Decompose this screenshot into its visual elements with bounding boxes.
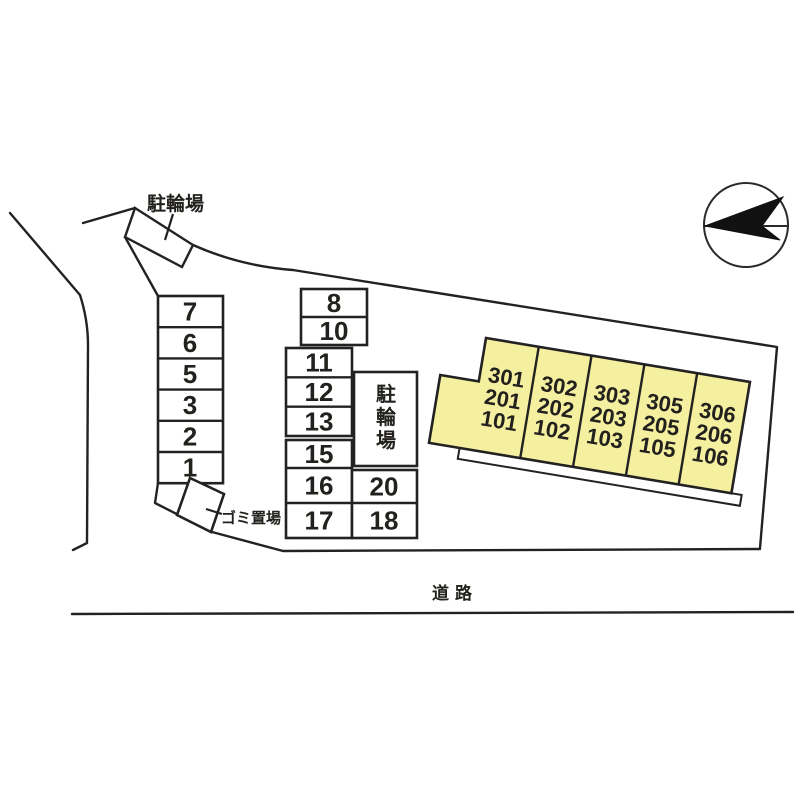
- bicycle-parking-mid-area: 駐 輪 場: [354, 372, 417, 466]
- garbage-area: [177, 478, 224, 532]
- road-label: 道路: [432, 583, 478, 603]
- parking-column-lower-middle: 15 16 17: [286, 439, 352, 538]
- parking-space-number: 18: [370, 506, 399, 536]
- garbage-area-label: ゴミ置場: [221, 509, 281, 527]
- parking-space-number: 3: [183, 390, 197, 420]
- parking-column-upper-middle: 8 10: [301, 288, 367, 346]
- parking-space-number: 7: [183, 297, 197, 327]
- parking-space-number: 2: [183, 421, 197, 451]
- site-plan-page: 駐輪場 7 6 5 3 2 1 8 10: [0, 0, 800, 800]
- north-arrow-icon: [704, 183, 788, 267]
- parking-space-number: 15: [305, 439, 334, 469]
- parking-column-middle: 11 12 13: [286, 348, 352, 437]
- parking-space-number: 16: [305, 471, 334, 501]
- parking-space-number: 12: [305, 377, 334, 407]
- bicycle-parking-mid-label-char: 場: [376, 429, 396, 452]
- bicycle-parking-mid-label-char: 駐: [376, 382, 396, 406]
- parking-space-number: 20: [370, 472, 399, 502]
- parking-space-number: 11: [305, 348, 333, 378]
- parking-space-number: 6: [183, 328, 197, 358]
- compass-needle: [705, 197, 783, 240]
- bicycle-parking-label: 駐輪場: [147, 192, 204, 215]
- building: 301 201 101 302 202 102 303 203 103 305 …: [427, 332, 760, 506]
- site-boundary-north: [83, 208, 135, 223]
- parking-column-left: 7 6 5 3 2 1: [158, 296, 223, 483]
- parking-space-number: 5: [183, 359, 197, 389]
- parking-space-number: 13: [305, 406, 334, 436]
- bicycle-parking-mid-label-char: 輪: [376, 405, 397, 429]
- parking-space-number: 10: [320, 316, 349, 346]
- parking-column-middle-right: 20 18: [352, 470, 417, 538]
- parking-space-number: 17: [305, 506, 334, 536]
- bicycle-parking-area: [125, 208, 193, 267]
- site-plan-canvas: 駐輪場 7 6 5 3 2 1 8 10: [0, 0, 800, 800]
- road-far-edge: [72, 612, 793, 614]
- site-boundary-west: [10, 213, 88, 550]
- parking-space-number: 8: [327, 288, 341, 318]
